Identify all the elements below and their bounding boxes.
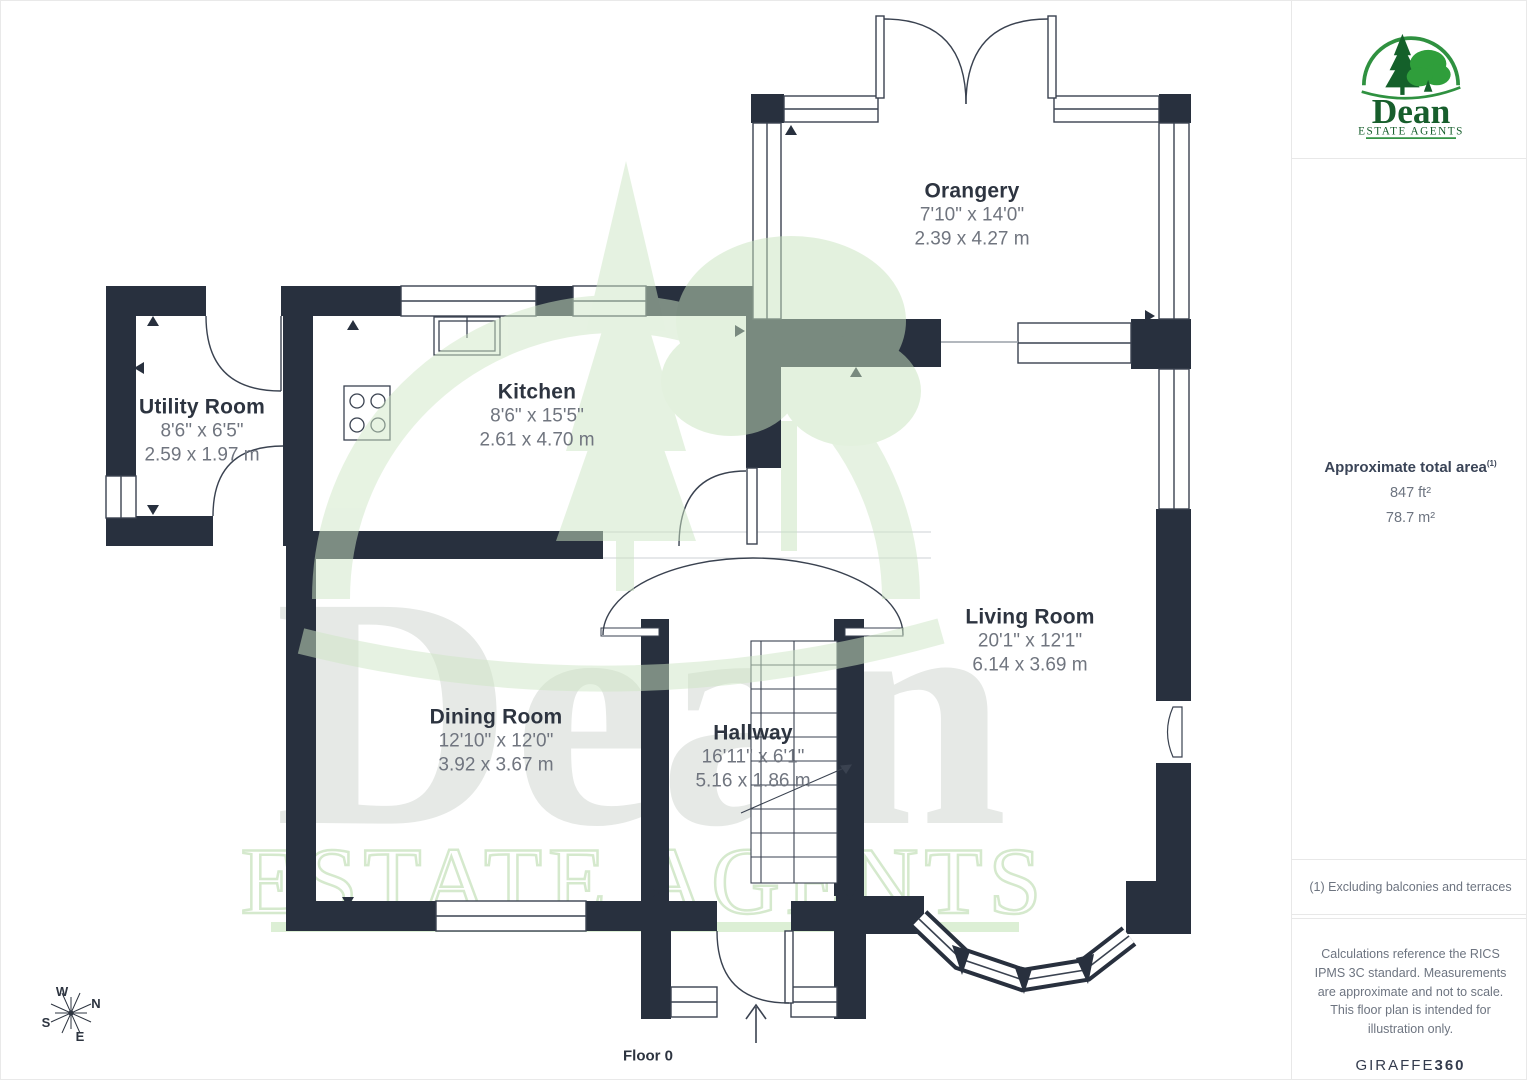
room-name: Orangery [914,179,1029,203]
compass-s: S [42,1015,51,1030]
room-label-utility-room: Utility Room 8'6" x 6'5" 2.59 x 1.97 m [139,395,265,467]
total-area-title: Approximate total area(1) [1292,459,1527,476]
door-arc [206,316,281,391]
compass-e: E [76,1029,85,1044]
brand-logo: GIRAFFE360 [1310,1055,1511,1078]
window [784,96,878,122]
floor-label: Floor 0 [623,1048,673,1065]
room-dimensions-imperial: 8'6" x 15'5" [479,404,594,428]
window [106,476,136,518]
plan-area: Dean ESTATE AGENTS [1,1,1291,1080]
agency-logo: Dean ESTATE AGENTS [1292,21,1527,141]
door-leaf [1048,16,1056,98]
window [791,987,837,1017]
window [671,987,717,1017]
room-label-kitchen: Kitchen 8'6" x 15'5" 2.61 x 4.70 m [479,380,594,452]
floorplan-page: Dean ESTATE AGENTS [0,0,1527,1080]
door-leaf [785,931,793,1003]
agency-logo-graphic: Dean ESTATE AGENTS [1346,21,1476,141]
room-label-living-room: Living Room 20'1" x 12'1" 6.14 x 3.69 m [965,605,1094,677]
sidebar: Dean ESTATE AGENTS Approximate total are… [1291,1,1527,1080]
room-dimensions-imperial: 12'10" x 12'0" [430,729,563,753]
window [436,901,586,931]
entrance-arrow [746,1005,766,1043]
window [1159,369,1189,509]
room-dimensions-imperial: 8'6" x 6'5" [139,419,265,443]
door-arc [717,931,789,1003]
logo-subtitle: ESTATE AGENTS [1358,126,1464,138]
room-dimensions-metric: 3.92 x 3.67 m [430,753,563,777]
door-leaf [601,628,659,636]
door-leaf [876,16,884,98]
room-name: Living Room [965,605,1094,629]
window [401,286,536,316]
french-door-arc [884,19,966,104]
sidebar-divider [1292,158,1527,159]
compass-w: W [56,984,69,999]
room-dimensions-metric: 6.14 x 3.69 m [965,653,1094,677]
total-area-footnote-ref: (1) [1487,459,1497,468]
compass-n: N [91,996,100,1011]
window [1159,123,1189,319]
footnote: (1) Excluding balconies and terraces [1292,859,1527,915]
room-name: Hallway [695,721,810,745]
room-name: Dining Room [430,705,563,729]
room-label-hallway: Hallway 16'11" x 6'1" 5.16 x 1.86 m [695,721,810,793]
room-dimensions-metric: 5.16 x 1.86 m [695,769,810,793]
window [1054,96,1159,122]
room-label-orangery: Orangery 7'10" x 14'0" 2.39 x 4.27 m [914,179,1029,251]
room-dimensions-metric: 2.59 x 1.97 m [139,443,265,467]
room-name: Utility Room [139,395,265,419]
total-area-title-text: Approximate total area [1324,459,1487,476]
window [1018,323,1131,363]
logo-underline [1366,137,1456,139]
room-dimensions-imperial: 7'10" x 14'0" [914,203,1029,227]
french-door-arc [966,19,1048,104]
total-area-metric: 78.7 m² [1292,510,1527,526]
disclaimer-text: Calculations reference the RICS IPMS 3C … [1310,945,1511,1039]
room-dimensions-metric: 2.39 x 4.27 m [914,227,1029,251]
room-dimensions-metric: 2.61 x 4.70 m [479,428,594,452]
total-area-imperial: 847 ft² [1292,485,1527,501]
room-dimensions-imperial: 16'11" x 6'1" [695,745,810,769]
floor-plan: Dean ESTATE AGENTS [1,1,1291,1080]
door-leaf [747,468,757,544]
compass-icon: W N S E [42,984,101,1044]
room-dimensions-imperial: 20'1" x 12'1" [965,629,1094,653]
disclaimer-box: Calculations reference the RICS IPMS 3C … [1292,918,1527,1080]
room-label-dining-room: Dining Room 12'10" x 12'0" 3.92 x 3.67 m [430,705,563,777]
logo-broadleaf-icon [1406,50,1450,86]
total-area-block: Approximate total area(1) 847 ft² 78.7 m… [1292,459,1527,526]
brand-360: 360 [1434,1057,1465,1074]
fireplace-niche [1156,701,1191,763]
brand-text: GIRAFFE [1355,1057,1434,1074]
room-name: Kitchen [479,380,594,404]
